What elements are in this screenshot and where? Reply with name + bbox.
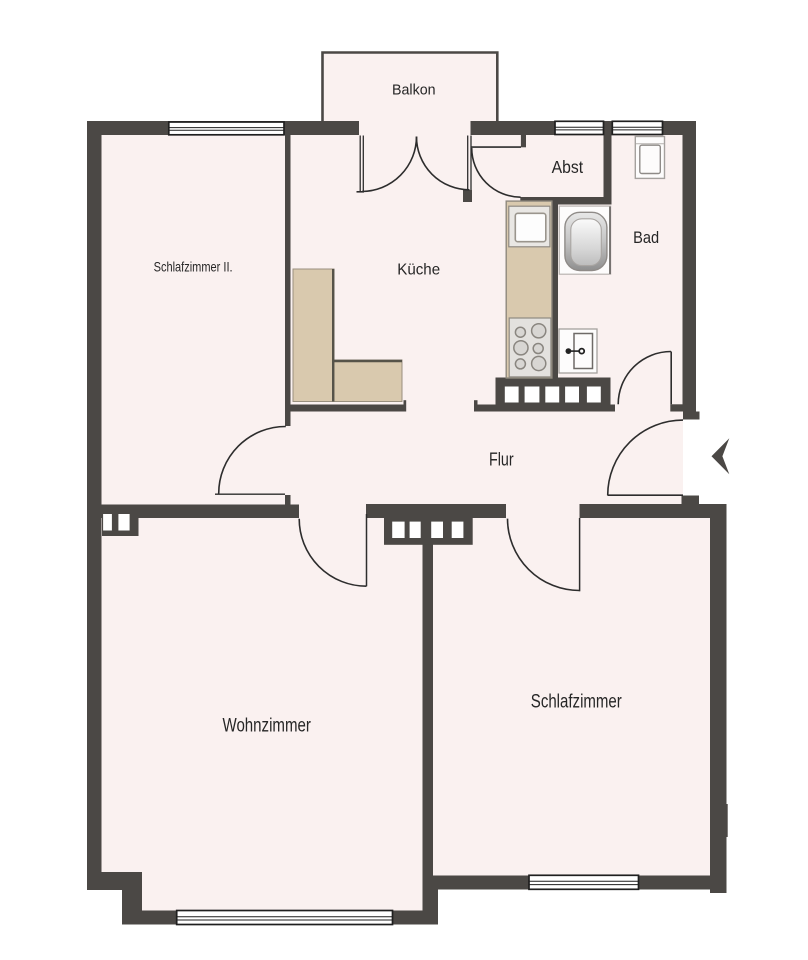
svg-text:Abst: Abst — [552, 157, 584, 177]
svg-text:Flur: Flur — [489, 450, 514, 470]
svg-text:Wohnzimmer: Wohnzimmer — [223, 716, 312, 737]
svg-text:Balkon: Balkon — [392, 81, 436, 98]
svg-text:Küche: Küche — [397, 261, 440, 278]
svg-text:Schlafzimmer: Schlafzimmer — [531, 691, 623, 712]
svg-text:Schlafzimmer II.: Schlafzimmer II. — [154, 259, 233, 275]
svg-text:Bad: Bad — [633, 229, 659, 247]
